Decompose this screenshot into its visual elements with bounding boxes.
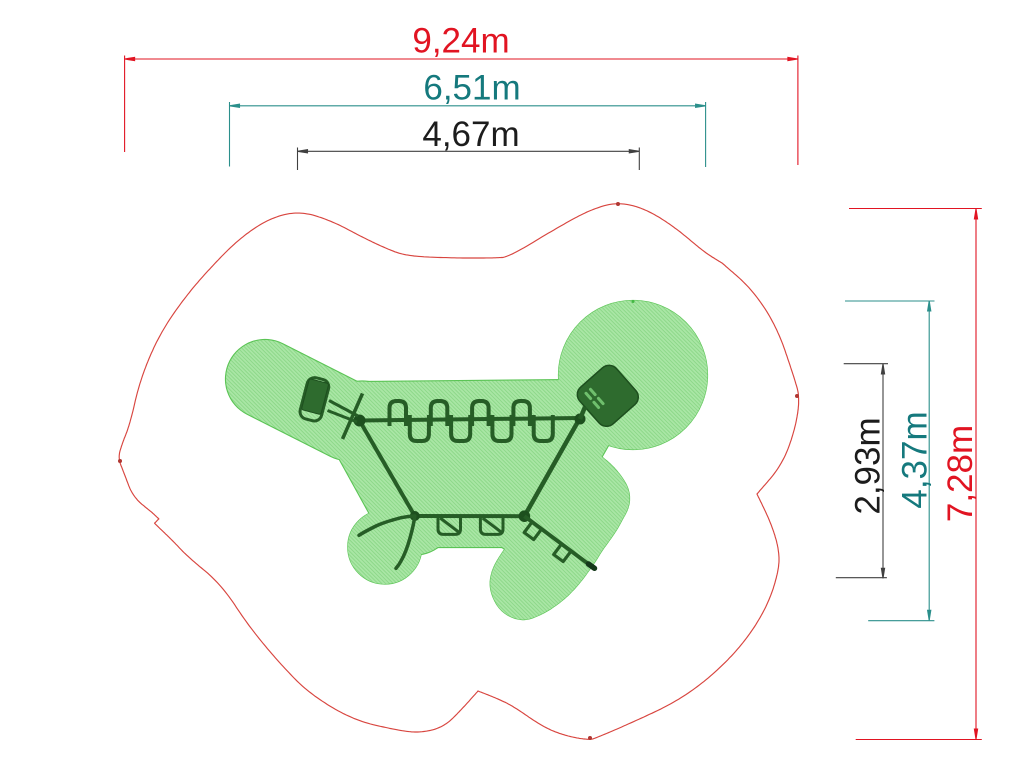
svg-text:2,93m: 2,93m <box>849 417 888 514</box>
svg-text:4,67m: 4,67m <box>422 115 519 154</box>
svg-text:7,28m: 7,28m <box>941 425 980 522</box>
svg-text:9,24m: 9,24m <box>412 22 509 61</box>
svg-text:4,37m: 4,37m <box>896 411 935 508</box>
svg-text:6,51m: 6,51m <box>423 68 520 107</box>
